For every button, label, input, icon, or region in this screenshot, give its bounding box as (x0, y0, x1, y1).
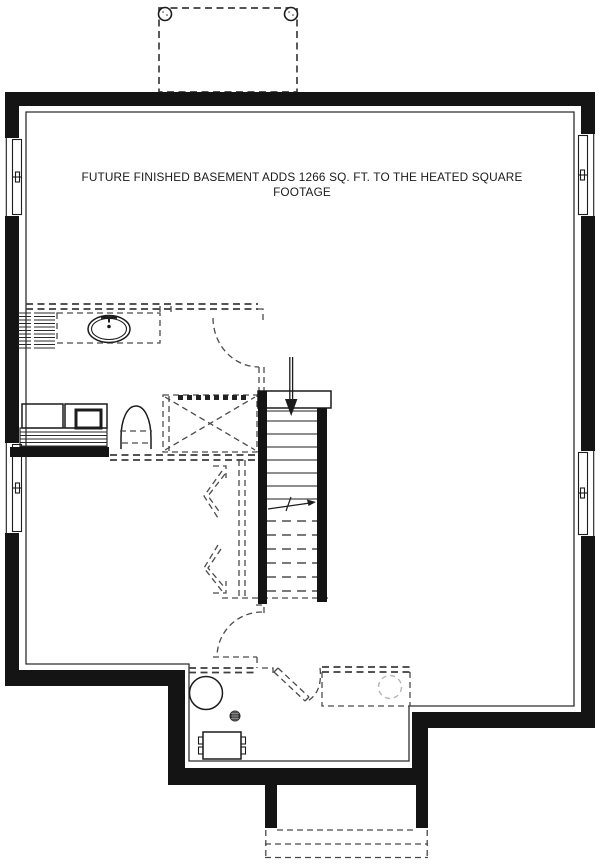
water-heater (190, 677, 223, 710)
wall-inner-face-line (26, 112, 574, 761)
annotation: FUTURE FINISHED BASEMENT ADDS 1266 SQ. F… (81, 170, 522, 199)
floor-drain-icon (230, 711, 241, 722)
floor-plan-page: FUTURE FINISHED BASEMENT ADDS 1266 SQ. F… (0, 0, 600, 864)
sink (88, 316, 130, 343)
laundry-appliances (10, 404, 109, 457)
future-bath (10, 304, 264, 460)
annotation-line-2: FOOTAGE (273, 185, 331, 199)
wall-mech-east (412, 712, 428, 785)
window-left-1 (5, 138, 22, 216)
wall-bottom-right (412, 712, 595, 728)
wall-top (5, 92, 595, 106)
porch-post-left (159, 8, 172, 21)
wall-stairwell-left (265, 785, 277, 828)
window-right-2 (579, 451, 596, 536)
wall-mech-bottom (168, 768, 428, 785)
half-wall (10, 447, 109, 457)
window-right-1 (579, 134, 596, 216)
wall-stairwell-right (416, 785, 428, 828)
future-toilet (120, 406, 152, 449)
wall-bottom-left (5, 670, 185, 686)
staircase (256, 357, 331, 616)
furnace (199, 732, 246, 759)
wall-mech-west (168, 670, 185, 785)
porch-outline (159, 8, 298, 93)
appliance-platform (20, 428, 107, 447)
sump-pit (379, 676, 402, 699)
stair-wall-left (258, 391, 267, 604)
future-shower (163, 395, 257, 452)
mechanical-room (189, 612, 410, 759)
bifold-doors-icon (204, 471, 225, 591)
shelves (18, 313, 55, 348)
porch-post-right (285, 8, 298, 21)
porch-dashed-outline (159, 8, 297, 92)
stair-treads (267, 411, 317, 499)
door-arc-mech (217, 612, 262, 657)
annotation-line-1: FUTURE FINISHED BASEMENT ADDS 1266 SQ. F… (81, 170, 522, 184)
appliance-left (22, 404, 63, 428)
basement-floor-plan: FUTURE FINISHED BASEMENT ADDS 1266 SQ. F… (0, 0, 600, 864)
stair-treads-hidden (267, 521, 317, 591)
stair-wall-right (317, 408, 327, 602)
door-arc-bath (213, 318, 259, 367)
exterior-stairwell (265, 830, 428, 858)
future-enclosure (322, 672, 410, 706)
angled-door (274, 668, 309, 701)
